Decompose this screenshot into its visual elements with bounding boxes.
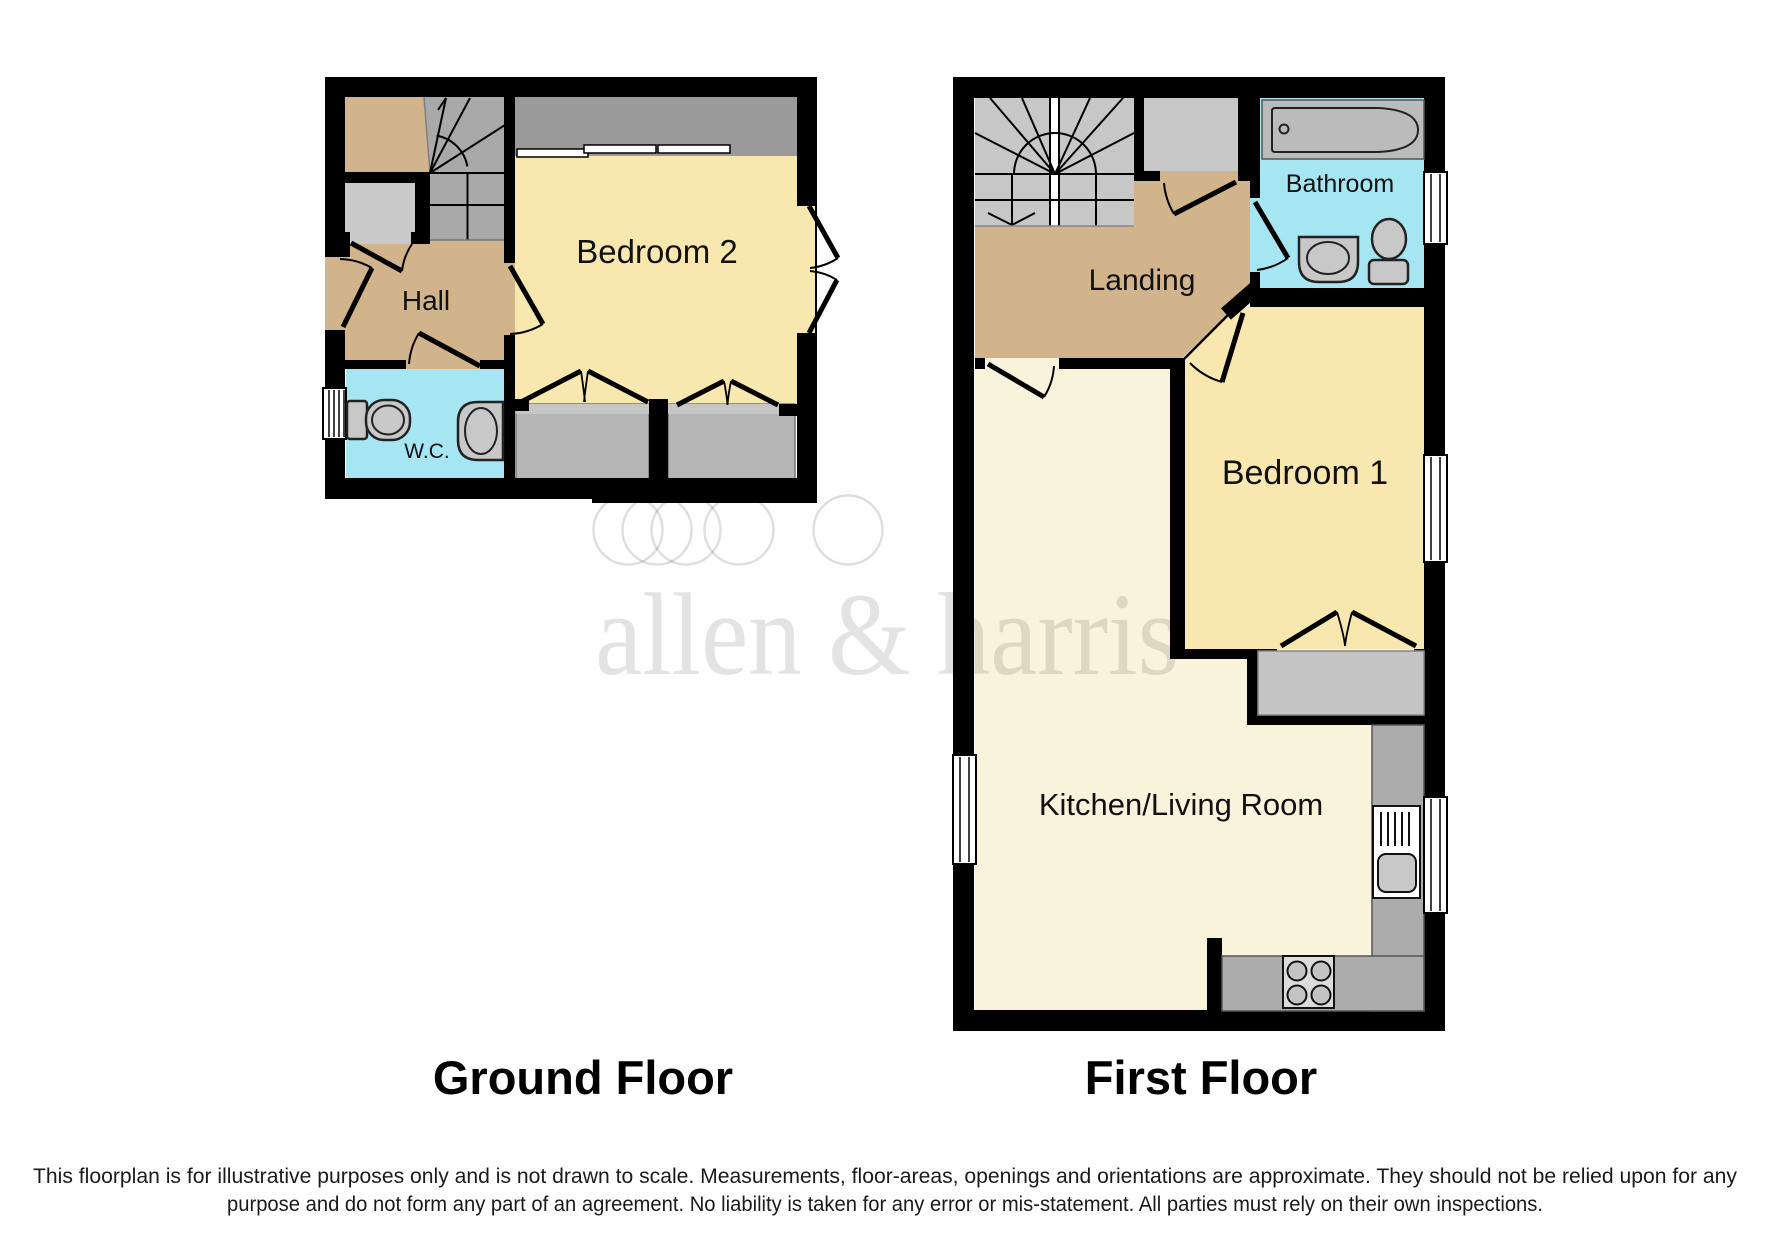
svg-text:Kitchen/Living Room: Kitchen/Living Room	[1039, 787, 1323, 822]
svg-text:W.C.: W.C.	[404, 440, 450, 463]
svg-text:Landing: Landing	[1089, 264, 1196, 297]
svg-text:First Floor: First Floor	[1085, 1051, 1317, 1104]
svg-text:Bathroom: Bathroom	[1286, 170, 1394, 198]
svg-text:Bedroom 1: Bedroom 1	[1222, 454, 1388, 492]
svg-text:purpose and do not form any pa: purpose and do not form any part of an a…	[227, 1193, 1543, 1216]
svg-text:This floorplan is for illustra: This floorplan is for illustrative purpo…	[33, 1165, 1737, 1188]
svg-text:Ground Floor: Ground Floor	[433, 1051, 733, 1104]
svg-text:Hall: Hall	[402, 285, 450, 316]
svg-text:Bedroom 2: Bedroom 2	[576, 233, 737, 270]
svg-text:allen & harris: allen & harris	[595, 569, 1179, 700]
